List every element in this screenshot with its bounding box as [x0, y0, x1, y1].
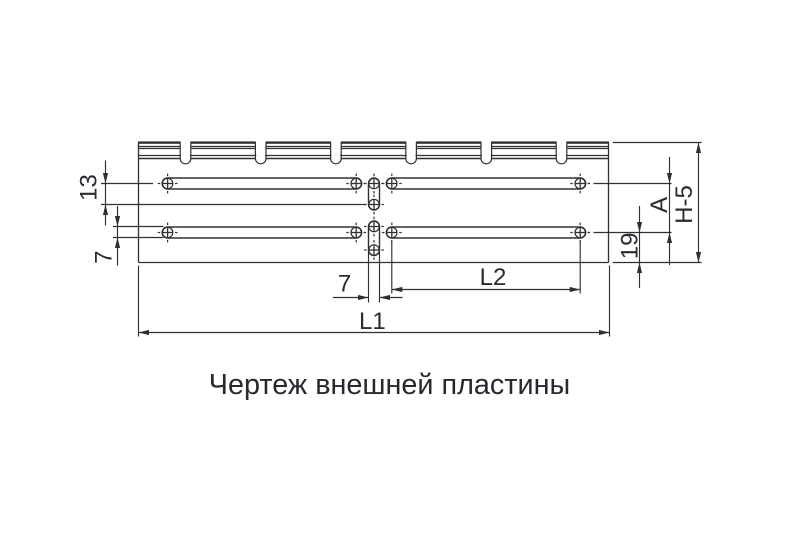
- svg-text:7: 7: [338, 271, 351, 298]
- svg-text:Чертеж внешней пластины: Чертеж внешней пластины: [209, 369, 570, 401]
- svg-text:L1: L1: [359, 308, 386, 335]
- svg-text:13: 13: [76, 174, 103, 201]
- svg-text:7: 7: [91, 251, 118, 264]
- svg-text:19: 19: [617, 233, 644, 260]
- svg-text:H-5: H-5: [671, 185, 698, 224]
- svg-text:L2: L2: [480, 264, 507, 291]
- svg-text:A: A: [646, 197, 673, 213]
